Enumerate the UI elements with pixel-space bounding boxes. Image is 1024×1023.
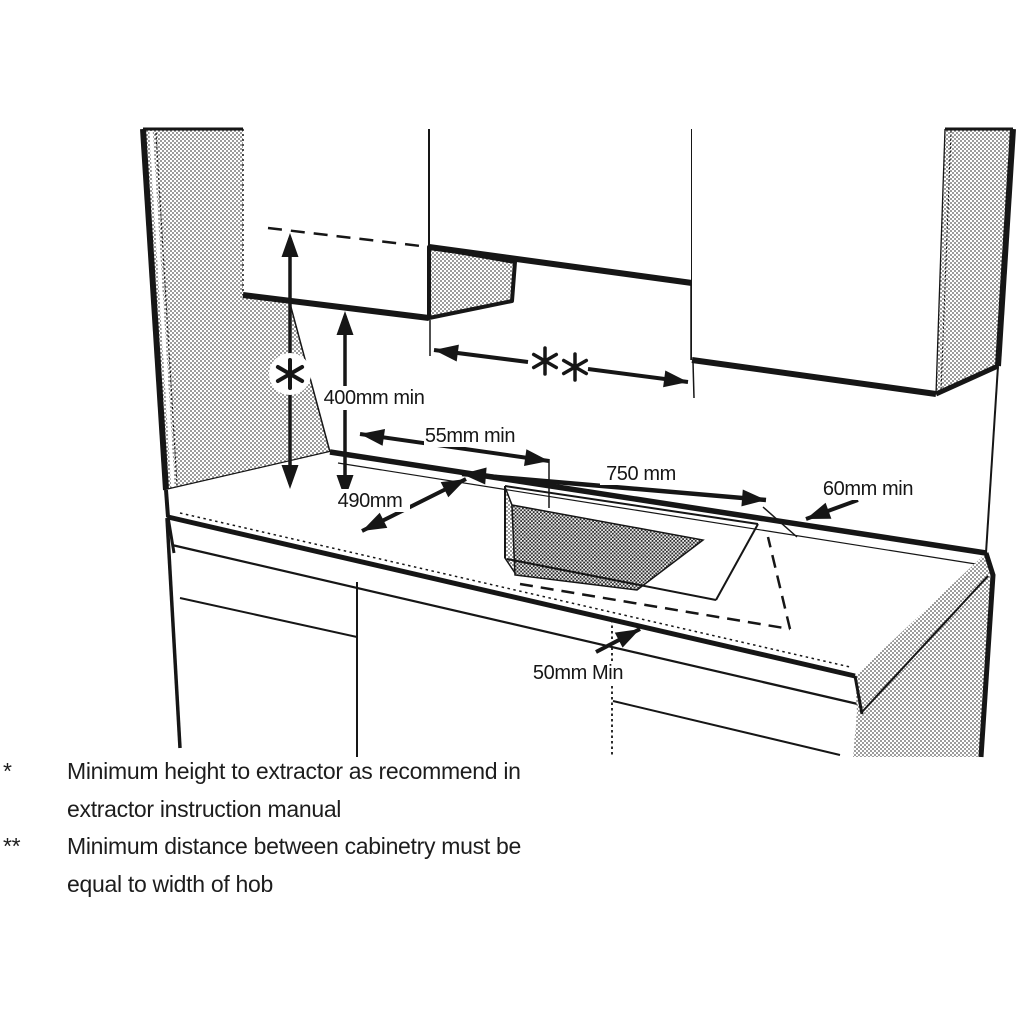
label-55mm: 55mm min <box>425 425 515 447</box>
footnote-text-line: extractor instruction manual <box>67 790 627 828</box>
right-wall-corner-line <box>986 366 998 553</box>
dimension-50mm <box>596 620 640 757</box>
label-60mm: 60mm min <box>823 478 913 500</box>
dimension-cabinet-gap <box>430 320 694 398</box>
footnote-marker-double-asterisk: ** <box>3 827 20 865</box>
footnote-marker-single-asterisk: * <box>3 752 12 790</box>
label-50mm: 50mm Min <box>533 662 623 684</box>
footnote-text-line: Minimum distance between cabinetry must … <box>67 827 627 865</box>
footnote-text-line: Minimum height to extractor as recommend… <box>67 752 627 790</box>
right-tall-cabinet <box>692 129 1013 394</box>
label-490mm: 490mm <box>338 490 403 512</box>
manual-page: 400mm min 55mm min 750 mm 490mm 60mm min… <box>0 0 1024 1023</box>
extractor-recess <box>429 129 692 360</box>
label-400mm: 400mm min <box>324 387 425 409</box>
footnote-text-line: equal to width of hob <box>67 865 627 903</box>
label-750mm: 750 mm <box>606 463 676 485</box>
dimension-60mm <box>806 500 858 519</box>
double-asterisk-marker <box>534 348 587 380</box>
middle-upper-cabinet <box>243 129 429 318</box>
